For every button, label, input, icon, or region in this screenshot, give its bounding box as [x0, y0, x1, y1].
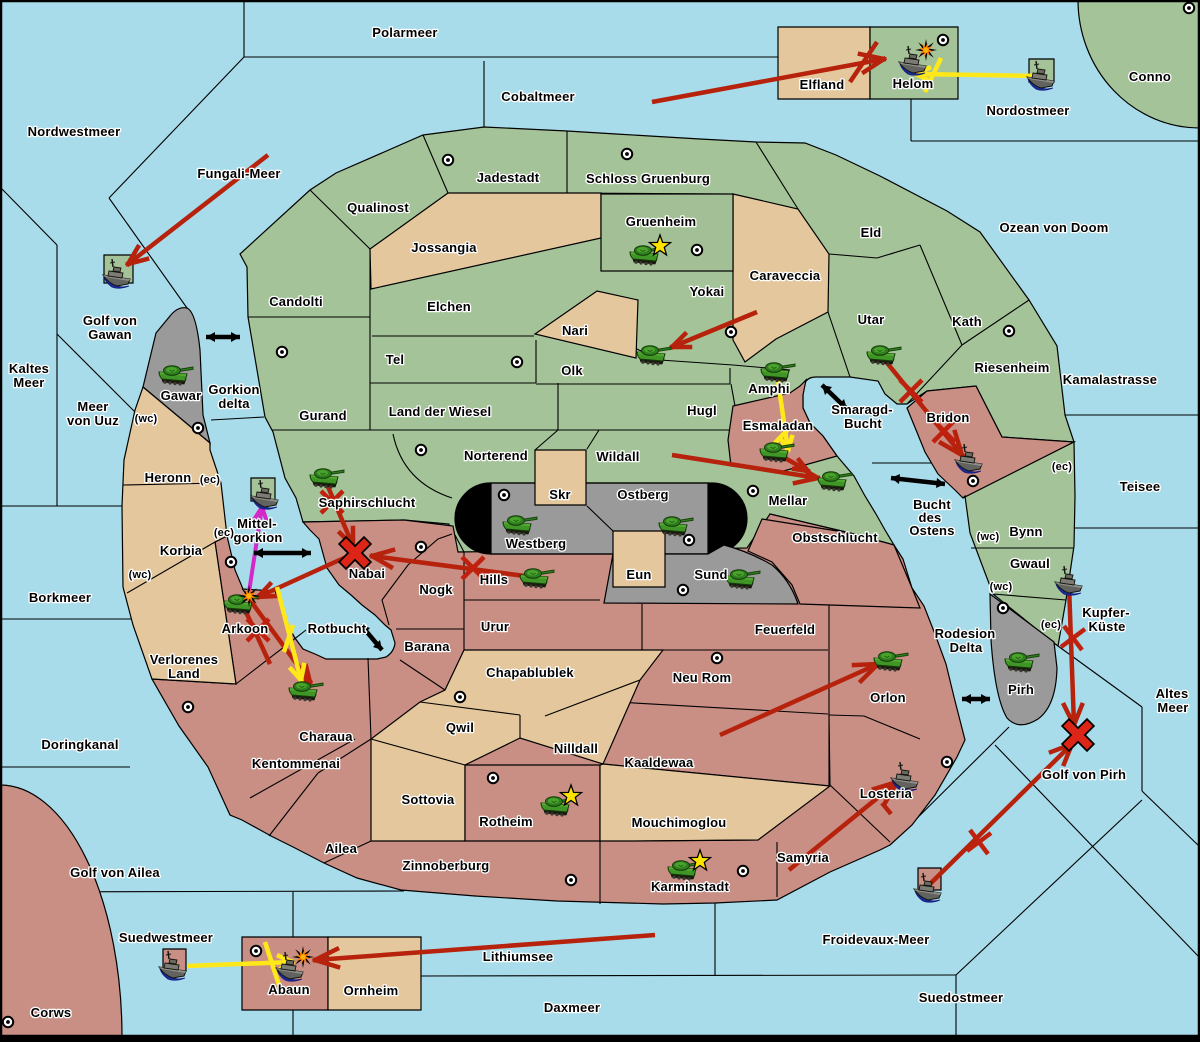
svg-text:(ec): (ec) — [200, 474, 220, 486]
svg-text:Nogk: Nogk — [419, 582, 453, 597]
svg-text:Qwil: Qwil — [446, 720, 474, 735]
svg-text:Suedostmeer: Suedostmeer — [919, 990, 1004, 1005]
svg-text:Charaua: Charaua — [299, 729, 353, 744]
svg-text:(wc): (wc) — [135, 413, 158, 425]
svg-text:Kath: Kath — [952, 314, 982, 329]
svg-text:Sund: Sund — [694, 567, 727, 582]
svg-text:Bridon: Bridon — [926, 410, 969, 425]
svg-text:Riesenheim: Riesenheim — [975, 360, 1050, 375]
svg-text:Meer: Meer — [1157, 700, 1188, 715]
svg-text:Wildall: Wildall — [596, 449, 639, 464]
svg-text:Teisee: Teisee — [1120, 479, 1161, 494]
svg-text:Urur: Urur — [481, 619, 509, 634]
svg-text:Borkmeer: Borkmeer — [29, 590, 91, 605]
svg-text:Nari: Nari — [562, 323, 588, 338]
svg-text:Delta: Delta — [950, 640, 983, 655]
svg-text:Gruenheim: Gruenheim — [626, 214, 696, 229]
svg-text:Tel: Tel — [386, 352, 404, 367]
svg-text:Land: Land — [168, 666, 200, 681]
svg-text:Gurand: Gurand — [299, 408, 346, 423]
svg-text:Olk: Olk — [561, 363, 583, 378]
svg-text:Altes: Altes — [1156, 686, 1189, 701]
svg-text:Land der Wiesel: Land der Wiesel — [389, 404, 492, 419]
svg-text:Abaun: Abaun — [268, 982, 309, 997]
svg-text:Suedwestmeer: Suedwestmeer — [119, 930, 213, 945]
svg-text:(ec): (ec) — [1052, 461, 1072, 473]
svg-text:Meer: Meer — [77, 399, 108, 414]
svg-text:Nilldall: Nilldall — [554, 741, 598, 756]
svg-text:Doringkanal: Doringkanal — [41, 737, 118, 752]
svg-text:Eun: Eun — [626, 567, 651, 582]
svg-text:(wc): (wc) — [990, 581, 1013, 593]
svg-text:Schloss Gruenburg: Schloss Gruenburg — [586, 171, 710, 186]
svg-text:(ec): (ec) — [1041, 619, 1061, 631]
svg-text:Corws: Corws — [31, 1005, 72, 1020]
svg-text:Chapablublek: Chapablublek — [486, 665, 574, 680]
svg-text:Gawan: Gawan — [88, 327, 132, 342]
svg-text:Gorkion: Gorkion — [208, 382, 259, 397]
svg-text:Gawar: Gawar — [161, 388, 202, 403]
svg-text:Cobaltmeer: Cobaltmeer — [501, 89, 575, 104]
svg-text:Rotbucht: Rotbucht — [308, 621, 367, 636]
svg-text:Lithiumsee: Lithiumsee — [483, 949, 554, 964]
svg-text:Helom: Helom — [893, 76, 934, 91]
svg-text:Verlorenes: Verlorenes — [150, 652, 219, 667]
svg-text:Karminstadt: Karminstadt — [651, 879, 730, 894]
svg-text:Skr: Skr — [549, 487, 571, 502]
svg-text:Mellar: Mellar — [769, 493, 808, 508]
svg-text:Froidevaux-Meer: Froidevaux-Meer — [822, 932, 929, 947]
svg-text:Daxmeer: Daxmeer — [544, 1000, 600, 1015]
svg-text:(wc): (wc) — [977, 531, 1000, 543]
svg-text:Neu Rom: Neu Rom — [673, 670, 731, 685]
svg-text:Fungali-Meer: Fungali-Meer — [197, 166, 280, 181]
svg-text:Westberg: Westberg — [506, 536, 567, 551]
svg-text:Losteria: Losteria — [860, 786, 913, 801]
svg-text:Hills: Hills — [480, 572, 508, 587]
svg-text:Kaaldewaa: Kaaldewaa — [624, 755, 694, 770]
svg-text:Mittel-: Mittel- — [237, 516, 277, 531]
svg-text:(ec): (ec) — [214, 527, 234, 539]
svg-text:Korbia: Korbia — [160, 543, 203, 558]
svg-text:Obstschlucht: Obstschlucht — [792, 530, 878, 545]
svg-text:Norterend: Norterend — [464, 448, 528, 463]
svg-text:Arkoon: Arkoon — [222, 621, 269, 636]
svg-text:Utar: Utar — [858, 312, 885, 327]
svg-text:Pirh: Pirh — [1008, 682, 1034, 697]
svg-text:Barana: Barana — [404, 639, 450, 654]
svg-text:Golf von Ailea: Golf von Ailea — [70, 865, 160, 880]
svg-text:Nabai: Nabai — [349, 566, 385, 581]
svg-text:Golf von Pirh: Golf von Pirh — [1042, 767, 1126, 782]
svg-text:Eld: Eld — [861, 225, 882, 240]
svg-text:Ornheim: Ornheim — [344, 983, 399, 998]
svg-text:Hugl: Hugl — [687, 403, 717, 418]
svg-text:(wc): (wc) — [129, 569, 152, 581]
svg-text:Samyria: Samyria — [777, 850, 830, 865]
svg-text:Smaragd-: Smaragd- — [831, 402, 893, 417]
svg-text:Bucht: Bucht — [844, 416, 882, 431]
svg-text:Kaltes: Kaltes — [9, 361, 49, 376]
svg-text:Yokai: Yokai — [690, 284, 725, 299]
svg-text:Kupfer-: Kupfer- — [1082, 605, 1130, 620]
svg-text:Nordostmeer: Nordostmeer — [986, 103, 1069, 118]
svg-text:Ostberg: Ostberg — [617, 487, 668, 502]
svg-text:Ostens: Ostens — [909, 523, 954, 538]
svg-text:Rotheim: Rotheim — [479, 814, 532, 829]
svg-text:Mouchimoglou: Mouchimoglou — [632, 815, 727, 830]
svg-text:Kentommenai: Kentommenai — [252, 756, 340, 771]
svg-text:delta: delta — [218, 396, 250, 411]
svg-text:Heronn: Heronn — [145, 470, 192, 485]
svg-text:Jossangia: Jossangia — [411, 240, 477, 255]
svg-text:Jadestadt: Jadestadt — [477, 170, 540, 185]
svg-text:Amphi: Amphi — [748, 381, 789, 396]
svg-text:Ailea: Ailea — [325, 841, 358, 856]
svg-text:Candolti: Candolti — [269, 294, 323, 309]
svg-text:Nordwestmeer: Nordwestmeer — [28, 124, 121, 139]
svg-text:Saphirschlucht: Saphirschlucht — [319, 495, 416, 510]
svg-text:Meer: Meer — [13, 375, 44, 390]
svg-text:Elfland: Elfland — [800, 77, 845, 92]
svg-text:Küste: Küste — [1088, 619, 1125, 634]
svg-text:Golf von: Golf von — [83, 313, 137, 328]
svg-text:Sottovia: Sottovia — [402, 792, 455, 807]
svg-text:Gwaul: Gwaul — [1010, 556, 1050, 571]
svg-text:Feuerfeld: Feuerfeld — [755, 622, 815, 637]
svg-text:Orlon: Orlon — [870, 690, 906, 705]
svg-text:Caraveccia: Caraveccia — [750, 268, 821, 283]
svg-text:Elchen: Elchen — [427, 299, 471, 314]
svg-text:von Uuz: von Uuz — [67, 413, 119, 428]
svg-text:Esmaladan: Esmaladan — [743, 418, 813, 433]
svg-text:Rodesion: Rodesion — [935, 626, 996, 641]
svg-text:Polarmeer: Polarmeer — [372, 25, 437, 40]
svg-text:Zinnoberburg: Zinnoberburg — [403, 858, 490, 873]
svg-text:Kamalastrasse: Kamalastrasse — [1063, 372, 1157, 387]
svg-text:Ozean von Doom: Ozean von Doom — [1000, 220, 1109, 235]
svg-text:Qualinost: Qualinost — [347, 200, 409, 215]
svg-text:Bynn: Bynn — [1009, 524, 1042, 539]
svg-text:Conno: Conno — [1129, 69, 1171, 84]
svg-text:gorkion: gorkion — [233, 530, 282, 545]
